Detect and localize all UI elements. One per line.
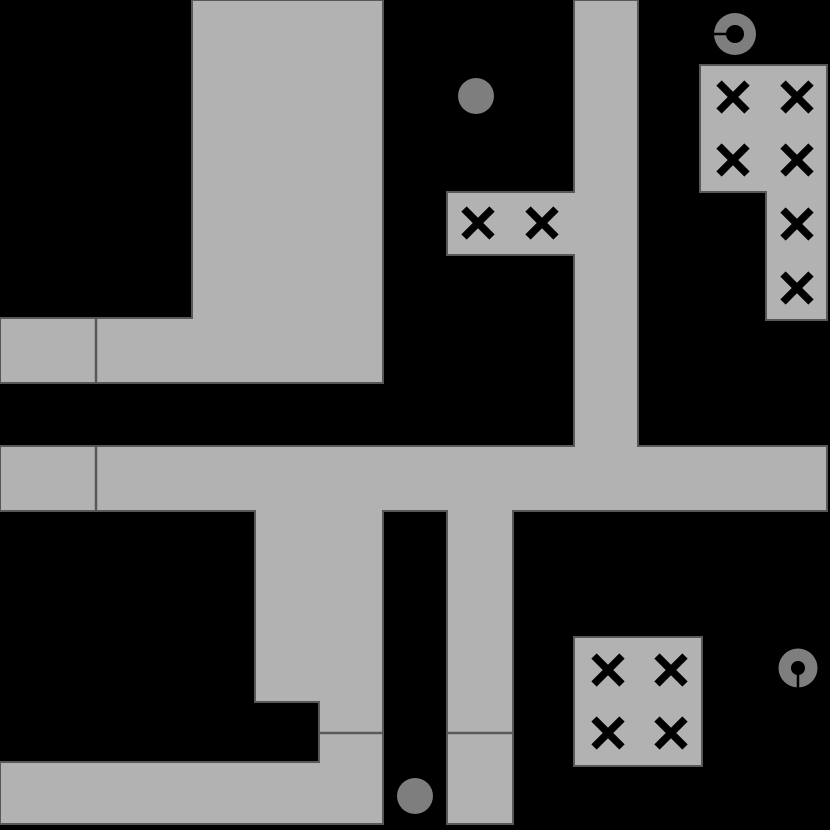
dungeon-map-canvas: [0, 0, 830, 830]
solid-circle-token: [458, 78, 494, 114]
solid-circle-token: [397, 778, 433, 814]
dungeon-map-viewport[interactable]: [0, 0, 830, 830]
room-top-left: [0, 0, 383, 383]
